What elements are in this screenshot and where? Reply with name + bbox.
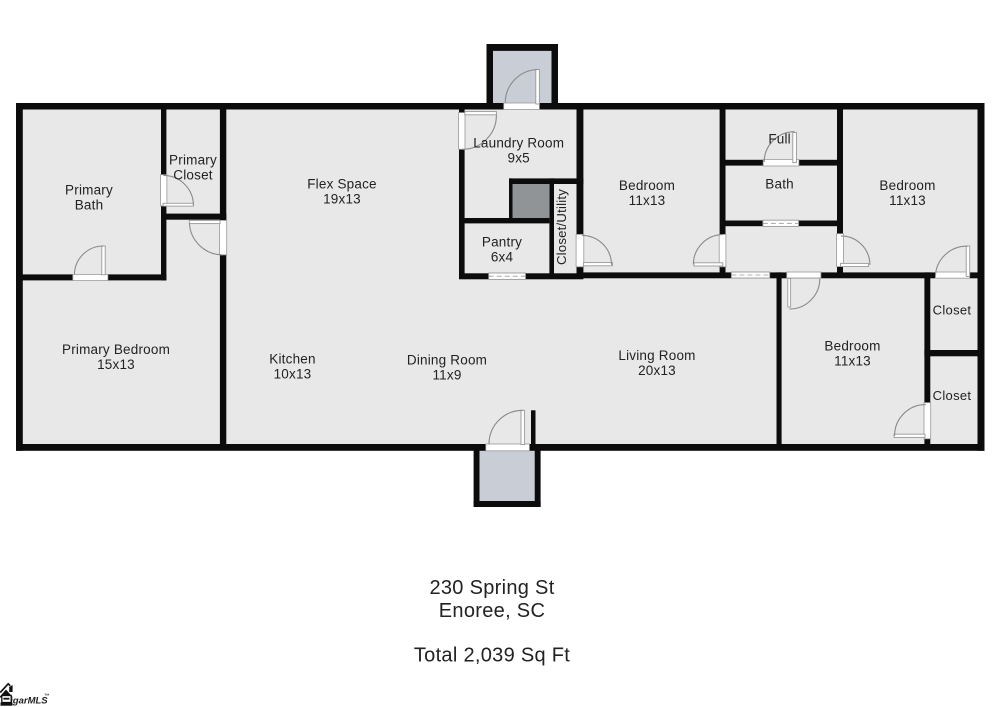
svg-text:Closet/Utility: Closet/Utility (554, 189, 569, 265)
svg-text:Dining Room: Dining Room (407, 353, 487, 368)
svg-text:11x13: 11x13 (834, 354, 871, 369)
svg-text:Bedroom: Bedroom (824, 339, 880, 354)
svg-text:Closet: Closet (933, 388, 972, 403)
svg-text:Living Room: Living Room (618, 348, 695, 363)
svg-text:™: ™ (44, 694, 50, 700)
svg-text:11x9: 11x9 (432, 368, 461, 383)
svg-text:Kitchen: Kitchen (269, 352, 315, 367)
svg-text:ugarMLS: ugarMLS (7, 696, 48, 707)
svg-text:Primary: Primary (65, 183, 113, 198)
svg-text:10x13: 10x13 (274, 367, 312, 382)
svg-text:Enoree, SC: Enoree, SC (439, 600, 545, 622)
svg-text:15x13: 15x13 (97, 357, 135, 372)
svg-text:Closet: Closet (933, 303, 972, 318)
svg-text:11x13: 11x13 (629, 193, 666, 208)
svg-text:Bath: Bath (765, 177, 794, 192)
svg-text:Primary: Primary (169, 153, 217, 168)
svg-text:Pantry: Pantry (482, 234, 522, 249)
svg-text:9x5: 9x5 (508, 151, 530, 166)
svg-text:Total 2,039 Sq Ft: Total 2,039 Sq Ft (414, 645, 570, 667)
svg-text:11x13: 11x13 (889, 193, 926, 208)
svg-text:Full: Full (768, 131, 791, 146)
svg-text:19x13: 19x13 (323, 192, 361, 207)
svg-text:Bath: Bath (75, 198, 104, 213)
svg-text:Laundry Room: Laundry Room (473, 136, 564, 151)
svg-text:Flex Space: Flex Space (307, 177, 377, 192)
svg-text:Closet: Closet (173, 168, 213, 183)
svg-text:Primary Bedroom: Primary Bedroom (62, 342, 170, 357)
svg-text:6x4: 6x4 (491, 249, 514, 264)
svg-text:20x13: 20x13 (638, 363, 676, 378)
svg-text:Bedroom: Bedroom (619, 178, 675, 193)
svg-text:Bedroom: Bedroom (879, 178, 935, 193)
svg-text:230 Spring St: 230 Spring St (429, 577, 554, 599)
